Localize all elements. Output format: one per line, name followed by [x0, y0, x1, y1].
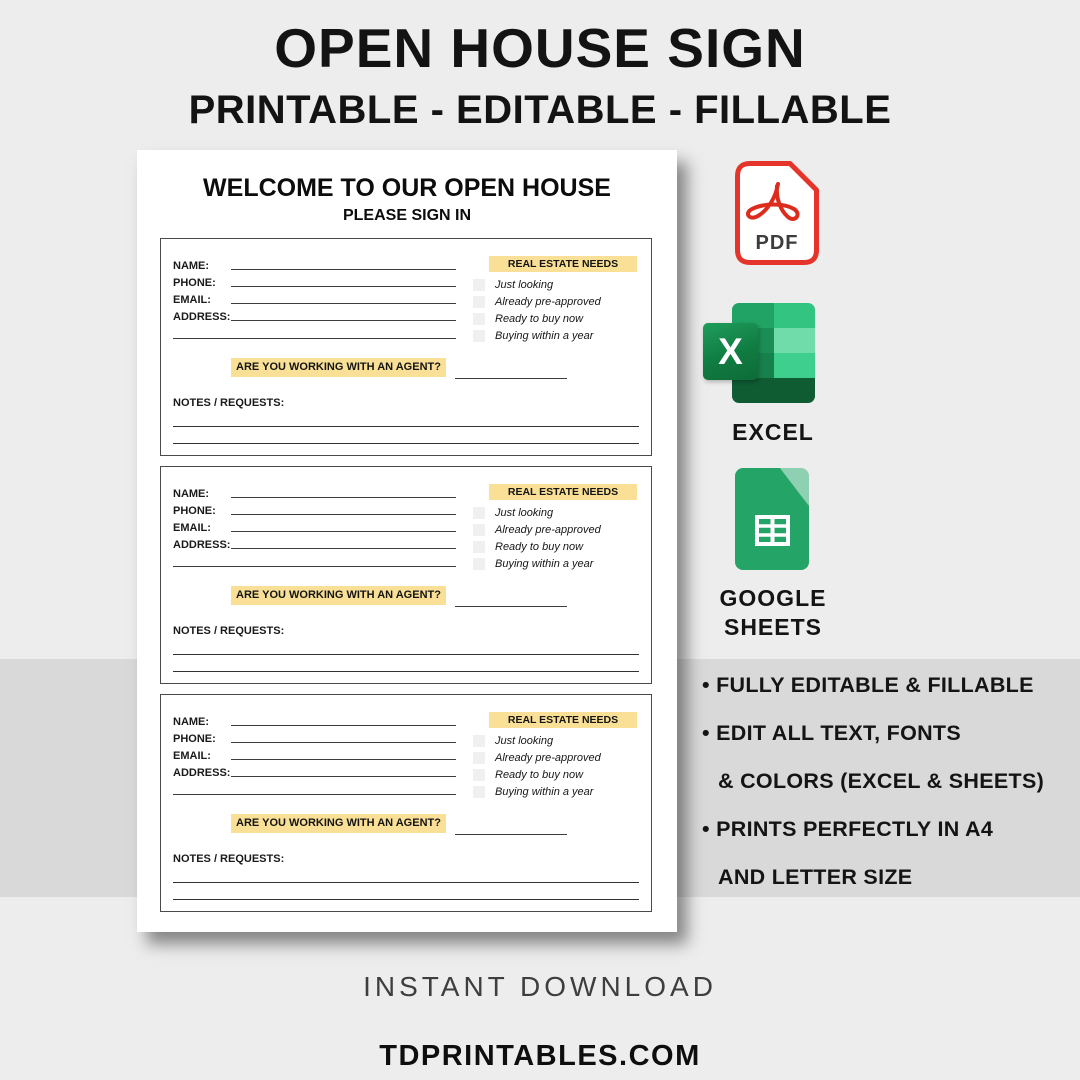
agent-question-row: ARE YOU WORKING WITH AN AGENT?	[231, 358, 567, 377]
signin-section: NAME: PHONE: EMAIL: ADDRESS: REAL ESTATE…	[160, 694, 652, 912]
needs-header: REAL ESTATE NEEDS	[489, 712, 637, 728]
address-label: ADDRESS:	[173, 311, 231, 323]
need-option-label: Just looking	[495, 735, 553, 747]
name-write-line	[231, 497, 456, 498]
checkbox-icon	[473, 769, 485, 781]
agent-question-row: ARE YOU WORKING WITH AN AGENT?	[231, 586, 567, 605]
excel-x-letter: X	[718, 333, 743, 370]
feature-item: • FULLY EDITABLE & FILLABLE	[702, 661, 1062, 709]
need-option-label: Ready to buy now	[495, 313, 583, 325]
sheet-heading: WELCOME TO OUR OPEN HOUSE	[137, 174, 677, 203]
field-row-phone: PHONE:	[173, 272, 456, 289]
google-sheets-file-icon	[735, 468, 809, 570]
address-label: ADDRESS:	[173, 539, 231, 551]
field-row-name: NAME:	[173, 255, 456, 272]
field-row-address: ADDRESS:	[173, 762, 456, 779]
checkbox-icon	[473, 752, 485, 764]
printable-sheet-mockup: WELCOME TO OUR OPEN HOUSE PLEASE SIGN IN…	[137, 150, 677, 932]
agent-answer-line	[455, 590, 567, 607]
email-label: EMAIL:	[173, 294, 231, 306]
page-title: OPEN HOUSE SIGN	[0, 16, 1080, 80]
phone-write-line	[231, 742, 456, 743]
checkbox-icon	[473, 296, 485, 308]
need-option-row: Just looking	[473, 732, 639, 749]
field-row-address: ADDRESS:	[173, 306, 456, 323]
real-estate-needs: REAL ESTATE NEEDS Just looking Already p…	[473, 712, 639, 800]
field-row-phone: PHONE:	[173, 500, 456, 517]
google-sheets-label: GOOGLE SHEETS	[698, 584, 848, 642]
feature-item: • PRINTS PERFECTLY IN A4	[702, 805, 1062, 853]
phone-label: PHONE:	[173, 733, 231, 745]
need-option-row: Already pre-approved	[473, 293, 639, 310]
email-label: EMAIL:	[173, 750, 231, 762]
signin-section: NAME: PHONE: EMAIL: ADDRESS: REAL ESTATE…	[160, 238, 652, 456]
agent-question-row: ARE YOU WORKING WITH AN AGENT?	[231, 814, 567, 833]
feature-item: AND LETTER SIZE	[702, 853, 1062, 901]
signin-sections: NAME: PHONE: EMAIL: ADDRESS: REAL ESTATE…	[160, 238, 652, 922]
need-option-row: Buying within a year	[473, 783, 639, 800]
phone-write-line	[231, 514, 456, 515]
need-option-label: Buying within a year	[495, 558, 593, 570]
needs-header: REAL ESTATE NEEDS	[489, 256, 637, 272]
agent-answer-line	[455, 362, 567, 379]
notes-write-line	[173, 443, 639, 444]
name-write-line	[231, 269, 456, 270]
phone-write-line	[231, 286, 456, 287]
excel-file-icon: X	[703, 303, 815, 403]
checkbox-icon	[473, 786, 485, 798]
email-write-line	[231, 531, 456, 532]
name-write-line	[231, 725, 456, 726]
instant-download-text: INSTANT DOWNLOAD	[0, 971, 1080, 1003]
contact-fields: NAME: PHONE: EMAIL: ADDRESS:	[173, 711, 456, 795]
address-write-line	[231, 320, 456, 321]
need-option-row: Buying within a year	[473, 327, 639, 344]
pdf-label: PDF	[734, 232, 820, 255]
need-option-label: Buying within a year	[495, 330, 593, 342]
need-option-label: Ready to buy now	[495, 769, 583, 781]
address-label: ADDRESS:	[173, 767, 231, 779]
need-option-row: Already pre-approved	[473, 749, 639, 766]
notes-write-line	[173, 654, 639, 655]
need-option-row: Ready to buy now	[473, 538, 639, 555]
feature-item: • EDIT ALL TEXT, FONTS	[702, 709, 1062, 757]
phone-label: PHONE:	[173, 277, 231, 289]
name-label: NAME:	[173, 488, 231, 500]
need-option-row: Just looking	[473, 504, 639, 521]
notes-write-line	[173, 882, 639, 883]
name-label: NAME:	[173, 260, 231, 272]
page-subtitle: PRINTABLE - EDITABLE - FILLABLE	[0, 88, 1080, 133]
field-row-name: NAME:	[173, 483, 456, 500]
field-row-email: EMAIL:	[173, 745, 456, 762]
needs-header: REAL ESTATE NEEDS	[489, 484, 637, 500]
excel-label: EXCEL	[656, 419, 890, 446]
address-overflow-line	[173, 338, 456, 339]
field-row-address: ADDRESS:	[173, 534, 456, 551]
notes-label: NOTES / REQUESTS:	[173, 625, 284, 637]
need-option-label: Ready to buy now	[495, 541, 583, 553]
need-option-label: Just looking	[495, 279, 553, 291]
need-option-row: Ready to buy now	[473, 310, 639, 327]
checkbox-icon	[473, 524, 485, 536]
field-row-email: EMAIL:	[173, 289, 456, 306]
checkbox-icon	[473, 279, 485, 291]
need-option-label: Buying within a year	[495, 786, 593, 798]
checkbox-icon	[473, 735, 485, 747]
need-option-label: Just looking	[495, 507, 553, 519]
feature-item: & COLORS (EXCEL & SHEETS)	[702, 757, 1062, 805]
email-write-line	[231, 759, 456, 760]
agent-question-bar: ARE YOU WORKING WITH AN AGENT?	[231, 586, 446, 605]
email-label: EMAIL:	[173, 522, 231, 534]
agent-question-bar: ARE YOU WORKING WITH AN AGENT?	[231, 814, 446, 833]
phone-label: PHONE:	[173, 505, 231, 517]
field-row-phone: PHONE:	[173, 728, 456, 745]
email-write-line	[231, 303, 456, 304]
real-estate-needs: REAL ESTATE NEEDS Just looking Already p…	[473, 484, 639, 572]
signin-section: NAME: PHONE: EMAIL: ADDRESS: REAL ESTATE…	[160, 466, 652, 684]
address-overflow-line	[173, 566, 456, 567]
contact-fields: NAME: PHONE: EMAIL: ADDRESS:	[173, 255, 456, 339]
address-overflow-line	[173, 794, 456, 795]
need-option-row: Ready to buy now	[473, 766, 639, 783]
excel-x-tile: X	[703, 323, 758, 380]
notes-write-line	[173, 426, 639, 427]
feature-list: • FULLY EDITABLE & FILLABLE • EDIT ALL T…	[702, 661, 1062, 901]
checkbox-icon	[473, 558, 485, 570]
contact-fields: NAME: PHONE: EMAIL: ADDRESS:	[173, 483, 456, 567]
name-label: NAME:	[173, 716, 231, 728]
real-estate-needs: REAL ESTATE NEEDS Just looking Already p…	[473, 256, 639, 344]
need-option-row: Buying within a year	[473, 555, 639, 572]
website-text: TDPRINTABLES.COM	[0, 1040, 1080, 1073]
checkbox-icon	[473, 541, 485, 553]
need-option-label: Already pre-approved	[495, 296, 601, 308]
notes-write-line	[173, 671, 639, 672]
notes-label: NOTES / REQUESTS:	[173, 397, 284, 409]
agent-answer-line	[455, 818, 567, 835]
sheets-table-icon	[755, 515, 790, 546]
need-option-row: Already pre-approved	[473, 521, 639, 538]
notes-write-line	[173, 899, 639, 900]
pdf-file-icon: PDF	[734, 160, 820, 266]
need-option-label: Already pre-approved	[495, 752, 601, 764]
agent-question-bar: ARE YOU WORKING WITH AN AGENT?	[231, 358, 446, 377]
field-row-email: EMAIL:	[173, 517, 456, 534]
field-row-name: NAME:	[173, 711, 456, 728]
sheet-subheading: PLEASE SIGN IN	[137, 207, 677, 225]
address-write-line	[231, 776, 456, 777]
checkbox-icon	[473, 313, 485, 325]
address-write-line	[231, 548, 456, 549]
need-option-label: Already pre-approved	[495, 524, 601, 536]
checkbox-icon	[473, 507, 485, 519]
checkbox-icon	[473, 330, 485, 342]
need-option-row: Just looking	[473, 276, 639, 293]
notes-label: NOTES / REQUESTS:	[173, 853, 284, 865]
